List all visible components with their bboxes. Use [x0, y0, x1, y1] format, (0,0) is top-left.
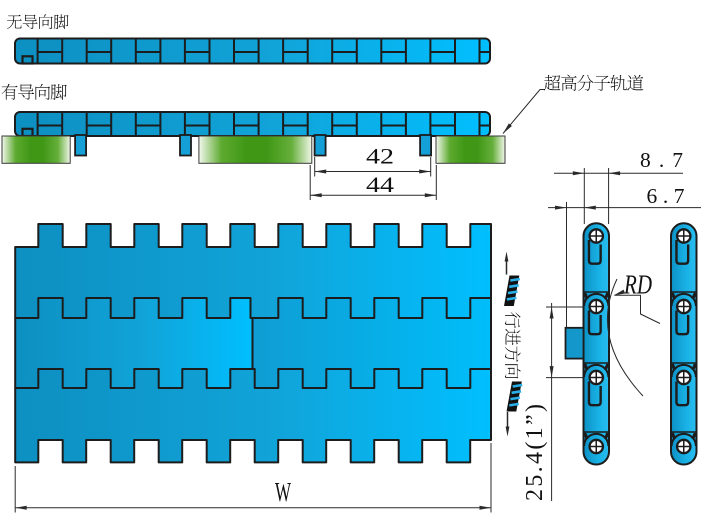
svg-text:42: 42 [366, 144, 394, 169]
svg-text:44: 44 [366, 172, 394, 197]
svg-text:RD: RD [623, 270, 652, 300]
svg-text:25.4(1”): 25.4(1”) [522, 404, 548, 501]
svg-text:6.7: 6.7 [647, 184, 685, 208]
svg-text:8.7: 8.7 [640, 148, 683, 172]
svg-text:W: W [275, 477, 291, 507]
